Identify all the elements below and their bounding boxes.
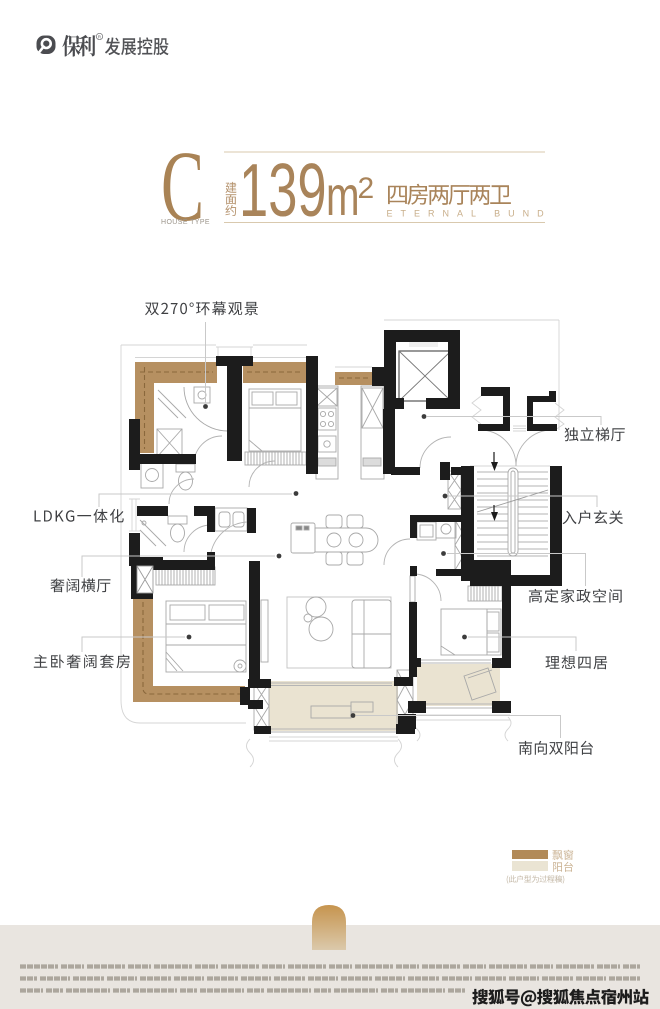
svg-text:m: m [326, 166, 360, 228]
svg-text:HOUSE TYPE: HOUSE TYPE [161, 219, 210, 226]
svg-text:ETERNAL BUND: ETERNAL BUND [387, 209, 552, 219]
svg-text:139: 139 [239, 148, 327, 233]
svg-text:2: 2 [358, 172, 375, 205]
